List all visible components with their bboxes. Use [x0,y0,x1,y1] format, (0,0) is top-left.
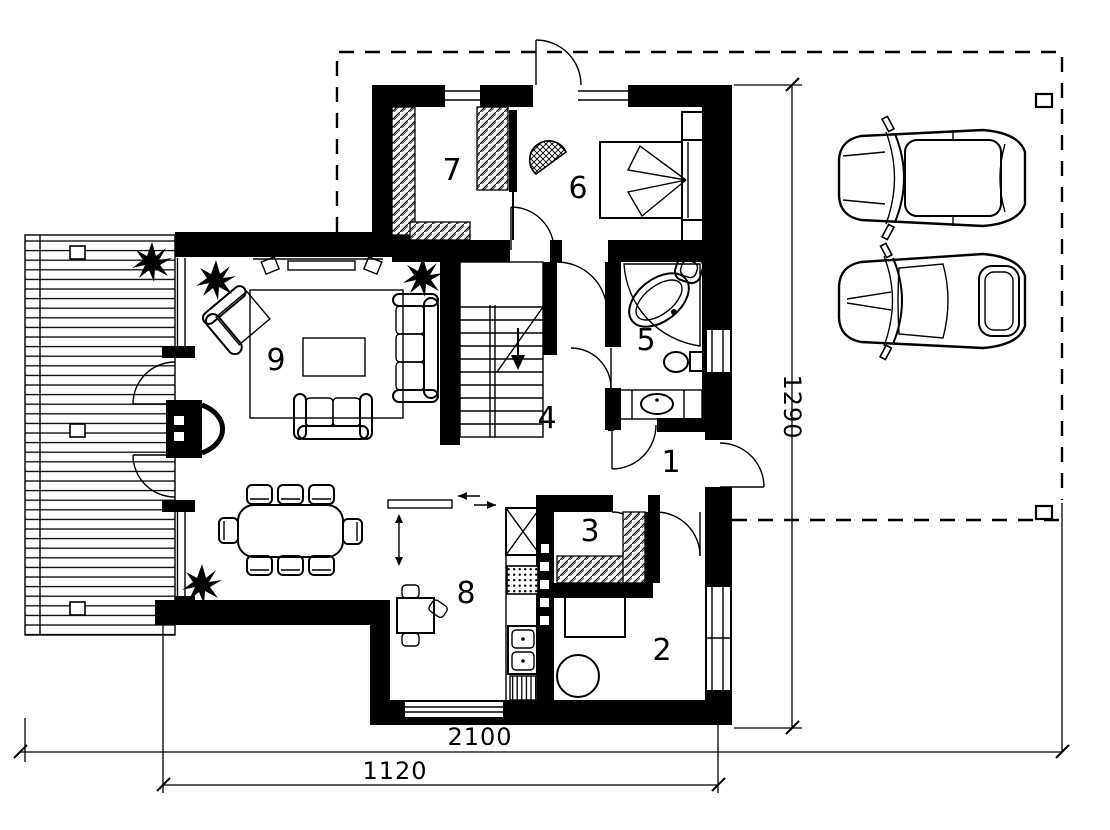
boiler [557,655,599,697]
chair [247,556,272,575]
kitchen-sink [508,626,538,674]
floor-plan-drawing: 1 2 3 4 5 6 7 8 9 2100 1120 1290 [0,0,1110,830]
floor-plan-page: 1 2 3 4 5 6 7 8 9 2100 1120 1290 [0,0,1110,830]
kitchen-table-set [397,585,449,646]
car-mirror [882,116,894,131]
car-mirror [881,243,892,257]
room-8-label: 8 [456,576,475,611]
deck-post [70,246,85,259]
door-room-2 [656,512,700,556]
vanity-sink [608,390,702,419]
door-bathroom [612,425,656,469]
deck-post [70,424,85,437]
chair [309,556,334,575]
wardrobe [623,512,645,583]
dimension-1120-label: 1120 [362,757,427,785]
window-north-2 [578,91,628,100]
chair [309,485,334,504]
room-3-label: 3 [580,514,599,549]
room-2-label: 2 [652,633,671,668]
bed [600,142,682,218]
deck-post [70,602,85,615]
sliding-door-arrows [395,492,496,566]
car-mirror [880,345,891,359]
pillow [628,146,686,180]
deck [25,235,175,635]
chair [343,519,362,544]
wardrobe [477,107,508,190]
bedroom-furniture [530,112,704,248]
room-5-label: 5 [636,323,655,358]
kitchen-table [397,598,434,633]
nightstand [682,112,704,140]
door-hall-corridor [557,262,607,312]
south-step [405,702,503,717]
window-north-1 [445,85,480,107]
car-1 [839,116,1025,239]
chair [219,518,238,543]
fireplace-vent [174,416,184,425]
chair [278,556,303,575]
window-east-2 [707,587,730,690]
sofa-2seat [294,394,372,439]
wardrobe [392,107,415,235]
wardrobe [557,556,627,583]
wardrobes-room-3 [557,512,645,583]
dishwasher [510,676,537,700]
chair [278,485,303,504]
car-mirror [882,224,894,239]
cooktop [507,566,538,594]
counter-shelf [388,500,452,508]
chair [402,585,419,598]
room-9-label: 9 [266,343,285,378]
room-1-label: 1 [661,445,680,480]
fireplace-vent [174,432,184,441]
sofa-3seat [393,294,438,402]
room-7-label: 7 [442,153,461,188]
dimension-2100-label: 2100 [447,723,512,751]
dimension-1290-label: 1290 [778,374,806,439]
chair [427,598,448,618]
armchair-round [530,141,566,174]
car-2 [839,243,1025,359]
coffee-table [303,338,365,376]
carport-post [1036,94,1052,107]
dining-furniture [219,485,362,575]
toilet [664,352,703,372]
dining-table [238,505,343,557]
door-north-exterior [536,40,581,85]
room-4-label: 4 [537,401,556,436]
chair [402,633,419,646]
utility-room-furniture [557,595,625,697]
tv-unit [253,257,383,274]
plant-icon [403,257,443,297]
tv [288,261,355,270]
armchair [200,284,273,357]
door-hall-entry [571,348,611,388]
corner-bathtub-platform [624,264,700,346]
room-6-label: 6 [568,171,587,206]
fireplace-stove [202,405,223,453]
chair [247,485,272,504]
plant-icon [196,260,236,300]
door-bedroom-6 [511,207,554,250]
table [565,595,625,637]
bathroom-fixtures [608,253,705,419]
carport-post [1036,506,1052,519]
window-bath-east [707,330,730,372]
stairs [460,262,543,437]
pillow [628,180,686,216]
wardrobe [410,222,470,240]
bathtub [619,263,698,338]
front-door-opening [703,440,734,487]
